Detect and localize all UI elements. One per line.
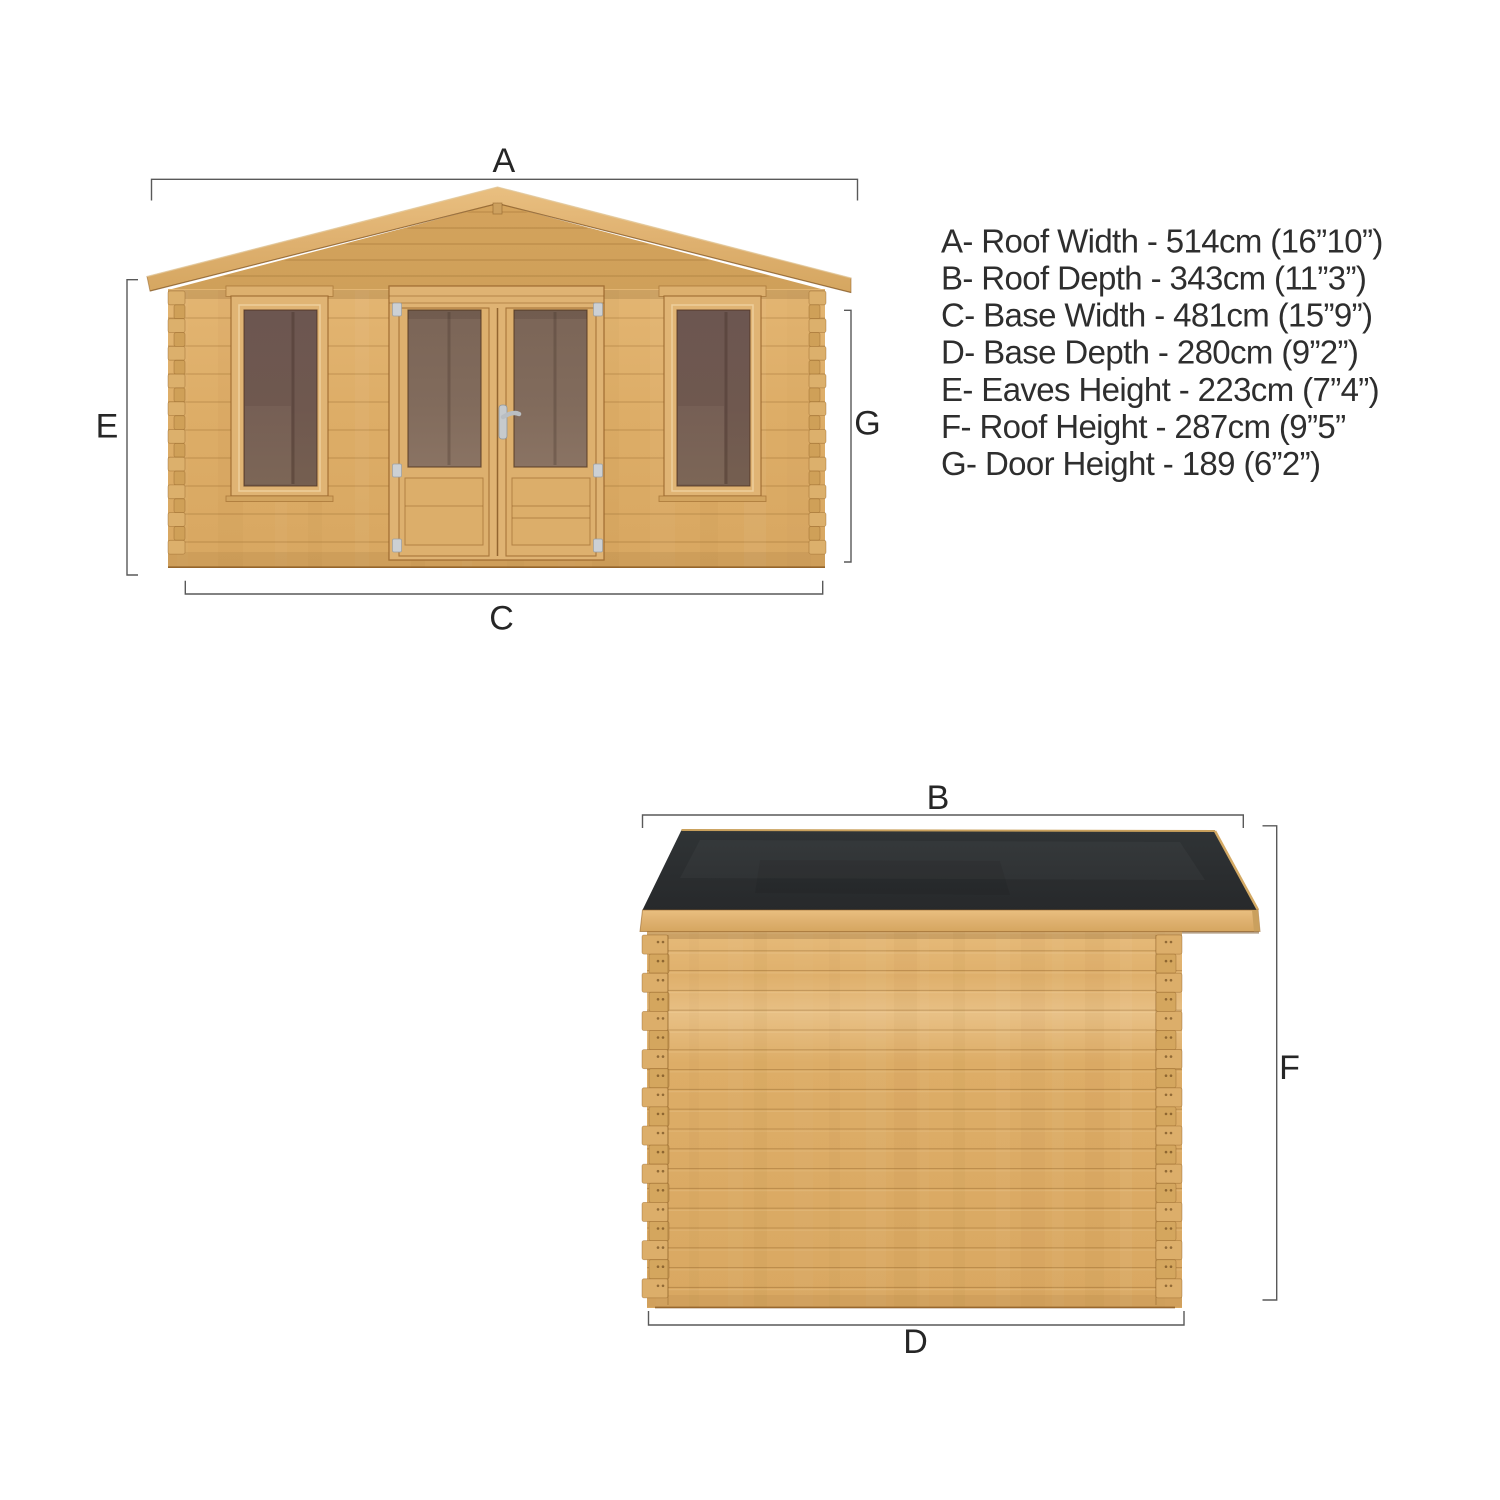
svg-text:C- Base Width - 481cm (15”9”): C- Base Width - 481cm (15”9”) <box>941 297 1372 334</box>
svg-text:F: F <box>1279 1049 1300 1087</box>
svg-text:A- Roof Width - 514cm (16”10”): A- Roof Width - 514cm (16”10”) <box>941 222 1383 259</box>
svg-text:B- Roof Depth - 343cm (11”3”): B- Roof Depth - 343cm (11”3”) <box>941 260 1366 297</box>
svg-text:C: C <box>489 600 514 638</box>
svg-text:E: E <box>96 408 119 446</box>
svg-text:E- Eaves Height - 223cm (7”4”): E- Eaves Height - 223cm (7”4”) <box>941 371 1379 408</box>
svg-text:B: B <box>927 779 950 817</box>
svg-text:F- Roof Height - 287cm (9”5”: F- Roof Height - 287cm (9”5” <box>941 408 1345 445</box>
svg-text:A: A <box>493 142 516 180</box>
svg-text:D: D <box>903 1323 928 1361</box>
svg-text:G: G <box>854 405 880 443</box>
svg-text:D- Base Depth - 280cm (9”2”): D- Base Depth - 280cm (9”2”) <box>941 334 1358 371</box>
svg-text:G- Door Height - 189 (6”2”): G- Door Height - 189 (6”2”) <box>941 445 1320 482</box>
